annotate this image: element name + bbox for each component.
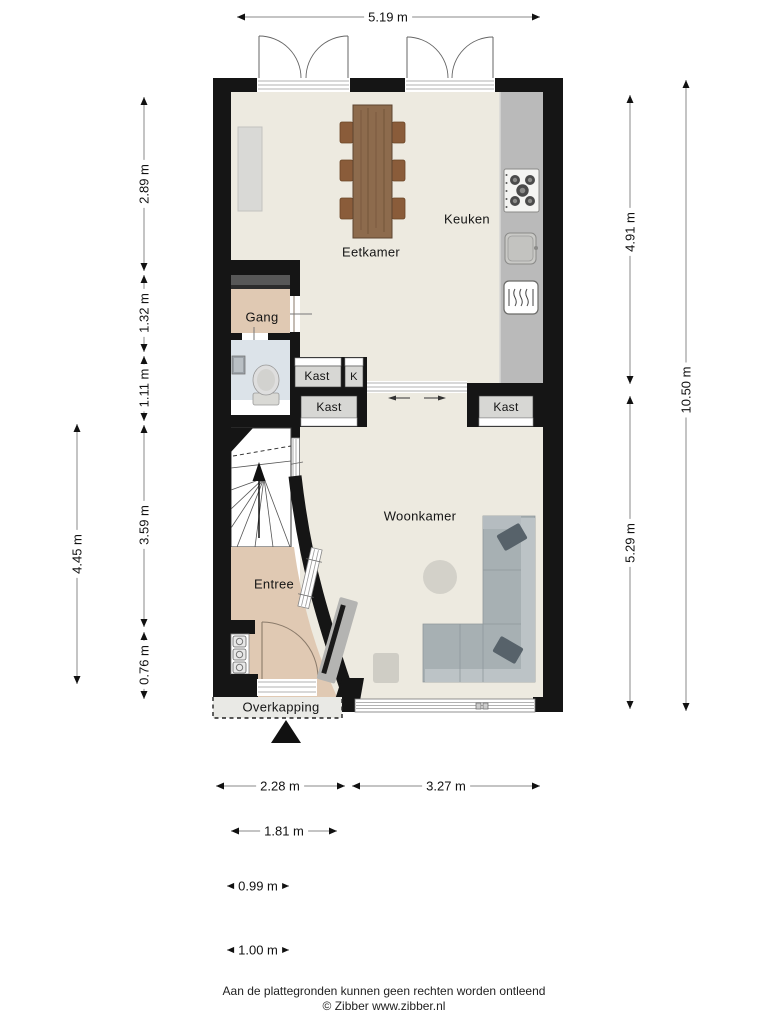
room-label-keuken: Keuken [444,212,490,227]
room-label-kast-mid: Kast [316,400,341,414]
dim-left-outer: 4.45 m [70,530,85,578]
credit-text: © Zibber www.zibber.nl [0,999,768,1013]
room-label-gang: Gang [245,310,278,325]
dim-right-outer: 10.50 m [679,363,694,418]
floorplan-canvas: Keuken Eetkamer Gang Kast K Kast Kast Wo… [0,0,768,1024]
room-label-overkapping: Overkapping [242,700,319,715]
room-label-kast-right: Kast [493,400,518,414]
dim-bottom-2: 3.27 m [422,779,470,794]
living-room-window-icon [355,699,535,712]
dim-left-2: 1.32 m [137,289,152,337]
utility-meters-icon [233,636,246,673]
dim-left-1: 2.89 m [137,160,152,208]
room-label-entree: Entree [254,577,294,592]
sink-icon [505,233,538,264]
ottoman [373,653,399,683]
dim-left-3: 1.11 m [137,365,152,412]
heater-icon [504,281,538,314]
north-arrow-icon [271,720,301,743]
dim-bottom-4: 0.99 m [234,879,282,894]
toilet-icon [253,365,279,405]
dim-bottom-5: 1.00 m [234,943,282,958]
dim-right-1: 4.91 m [623,208,638,256]
room-label-kast-small: K [350,371,358,383]
pouf [423,560,457,594]
closet-block-left [290,357,367,427]
stove-icon [504,169,539,212]
dining-table-and-chairs [340,105,405,238]
dim-bottom-1: 2.28 m [256,779,304,794]
room-label-eetkamer: Eetkamer [342,245,400,260]
room-label-kast-top: Kast [304,369,329,383]
sideboard [238,127,262,211]
hand-basin-icon [232,356,245,374]
dim-right-2: 5.29 m [623,519,638,567]
stairs-icon [231,428,291,547]
dim-left-5: 0.76 m [137,641,152,689]
room-label-woonkamer: Woonkamer [384,509,457,524]
dim-top-width: 5.19 m [364,10,412,25]
disclaimer-text: Aan de plattegronden kunnen geen rechten… [0,984,768,998]
dim-left-4: 3.59 m [137,501,152,549]
dim-bottom-3: 1.81 m [260,824,308,839]
